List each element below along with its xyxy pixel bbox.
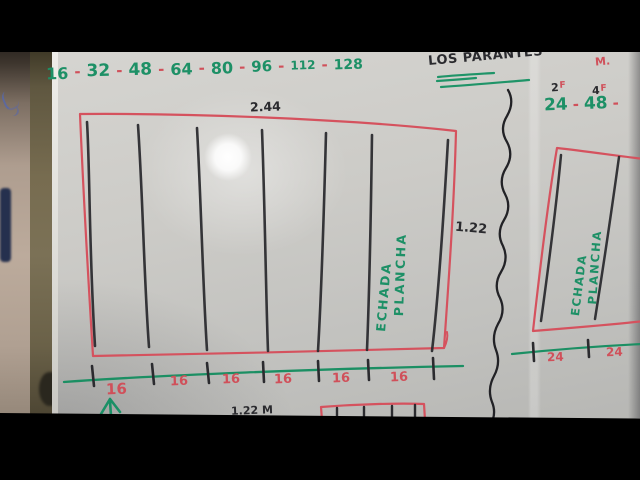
title-underline — [438, 73, 494, 77]
sup-label-2f: 2F — [551, 81, 565, 95]
sequence-value: 32 — [86, 61, 110, 82]
sequence-value: 80 — [211, 58, 234, 78]
letterbox-bottom — [0, 413, 640, 480]
sequence-dash: - — [239, 58, 246, 76]
sequence-value: 96 — [251, 57, 272, 76]
sequence-value: 48 — [584, 93, 608, 114]
main-ruler-tick — [368, 360, 369, 380]
right-ruler-tick — [533, 343, 534, 361]
ruler-segment-label: 16 — [170, 374, 189, 390]
main-ruler-tick — [92, 366, 94, 386]
sequence-dash: - — [158, 60, 165, 78]
wavy-divider-line — [490, 90, 511, 426]
sup-base: 2 — [551, 81, 559, 94]
sequence-dash: - — [74, 62, 81, 80]
ruler-segment-label: 16 — [274, 372, 293, 388]
title-underline — [437, 78, 476, 81]
sequence-dash: - — [116, 61, 123, 79]
sequence-dash: - — [612, 94, 619, 112]
title-underline — [441, 80, 529, 87]
sequence-dash: - — [572, 95, 579, 113]
ruler-segment-label: 16 — [390, 370, 409, 386]
main-box-label-line1: PLANCHA — [391, 232, 409, 317]
ruler-segment-label: 16 — [222, 372, 241, 388]
ruler-segment-label: 24 — [606, 345, 623, 360]
vertical-board-line — [262, 130, 268, 351]
letterbox-top — [0, 0, 640, 52]
vertical-board-line — [197, 128, 207, 350]
right-ruler-tick — [588, 340, 589, 357]
main-ruler-tick — [207, 363, 209, 383]
sequence-dash: - — [321, 56, 328, 74]
whiteboard-photo: 16-32-48-64-80-96-112-128 LOS PARANTES M… — [0, 0, 640, 480]
sequence-dash: - — [198, 59, 205, 77]
ruler-segment-label: 16 — [332, 371, 351, 387]
sequence-value: 24 — [544, 95, 568, 116]
sequence-value: 112 — [290, 58, 315, 73]
ruler-segment-label: 24 — [547, 350, 564, 365]
unit-label: M. — [594, 54, 610, 68]
sup-exponent: F — [559, 81, 566, 91]
main-ruler-tick — [263, 362, 264, 382]
main-ruler-tick — [152, 364, 154, 384]
sequence-value: 128 — [333, 57, 363, 74]
vertical-board-line — [318, 133, 326, 351]
ruler-segment-label: 16 — [106, 380, 127, 399]
vertical-board-line — [367, 135, 372, 350]
main-box-height-dimension: 1.22 — [454, 220, 487, 238]
sequence-value: 16 — [46, 64, 69, 84]
sequence-value: 64 — [170, 59, 193, 79]
sequence-dash: - — [278, 57, 285, 75]
vertical-board-line — [138, 125, 149, 347]
right-measure-sequence: 24-48- — [544, 93, 624, 116]
sequence-value: 48 — [128, 59, 152, 80]
main-ruler-tick — [433, 358, 434, 379]
main-ruler-tick — [318, 361, 319, 381]
main-box-width-dimension: 2.44 — [250, 98, 281, 114]
